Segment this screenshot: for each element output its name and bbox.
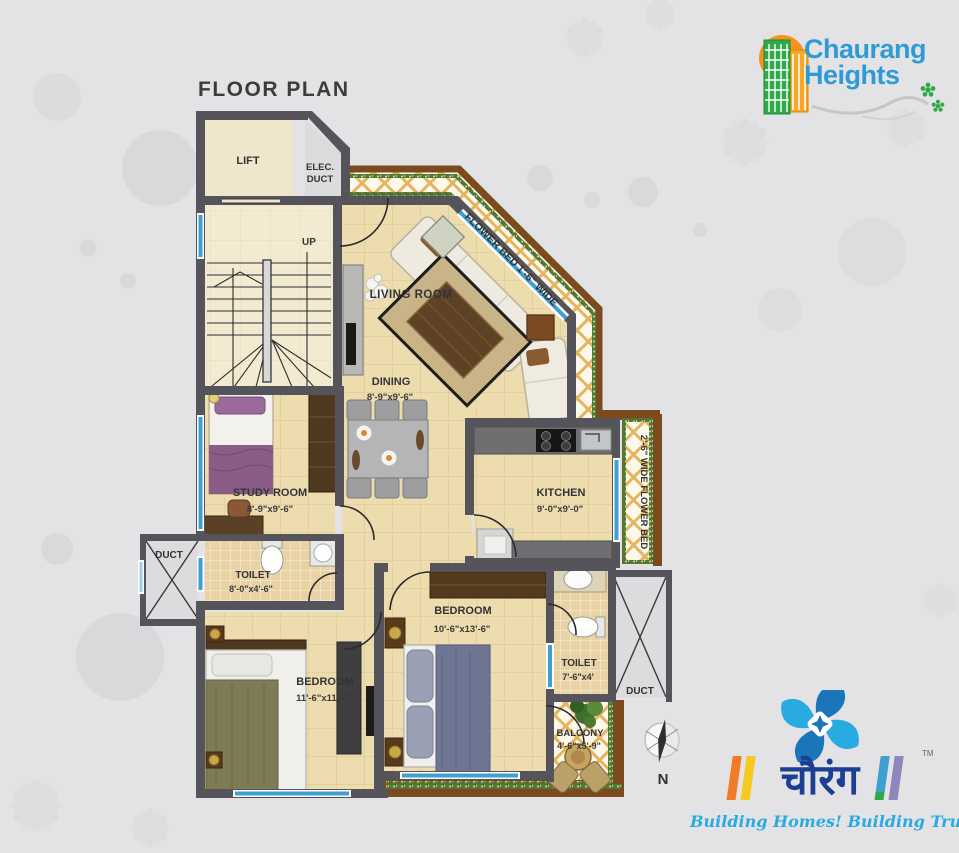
room-label-dining: DINING <box>372 376 411 388</box>
room-label-elec-duct-2: DUCT <box>307 174 334 185</box>
floor-plan-page: LIFT ELEC. DUCT UP LIVING ROOM DINING 8'… <box>0 0 959 853</box>
page-title: FLOOR PLAN <box>198 78 350 102</box>
window <box>613 458 620 542</box>
room-label-toilet-left: TOILET <box>235 570 270 581</box>
room-label-bedroom-left: BEDROOM <box>296 676 353 688</box>
dining-set <box>347 400 428 498</box>
window <box>197 213 204 259</box>
window <box>138 560 144 594</box>
brand-name-line2: Heights <box>804 60 900 90</box>
room-label-duct-left: DUCT <box>155 550 183 561</box>
room-dims-kitchen: 9'-0"x9'-0" <box>537 504 583 515</box>
window <box>400 772 520 779</box>
footer-brand-name: चौरंग <box>780 755 861 804</box>
lift-door <box>222 199 280 203</box>
compass-north-label: N <box>658 771 669 788</box>
room-dims-toilet-left: 8'-0"x4'-6" <box>229 584 273 594</box>
trademark-symbol: TM <box>922 749 934 758</box>
room-label-toilet-right: TOILET <box>561 658 596 669</box>
stair-up-label: UP <box>302 237 316 248</box>
window <box>197 556 204 592</box>
tv <box>346 323 356 365</box>
room-dims-study: 8'-9"x9'-6" <box>247 504 293 515</box>
side-table-wood <box>527 315 554 340</box>
footer-brand-logo: चौरंग TM Building Homes! Building Trust! <box>690 690 950 831</box>
window <box>233 790 351 797</box>
brand-logo: Chaurang Heights <box>742 28 952 128</box>
room-dims-balcony: 4'-6"x5'-9" <box>557 741 601 751</box>
stair-rail <box>263 260 271 382</box>
brand-tagline: Building Homes! Building Trust! <box>690 812 950 831</box>
room-label-elec-duct-1: ELEC. <box>306 162 334 173</box>
flower-bed-right-label: 2'-6" WIDE FLOWER BED <box>638 435 649 550</box>
room-label-lift: LIFT <box>236 155 259 167</box>
logo-swirl <box>812 97 928 113</box>
room-label-kitchen: KITCHEN <box>537 487 586 499</box>
brand-logo-wordmark: Chaurang Heights <box>804 36 926 88</box>
window <box>546 643 554 689</box>
compass: N <box>645 719 679 788</box>
footer-logo-graphic: चौरंग TM <box>690 690 950 810</box>
room-label-living: LIVING ROOM <box>370 289 453 301</box>
room-label-balcony: BALCONY <box>557 728 605 739</box>
room-label-duct-right: DUCT <box>626 686 654 697</box>
room-dims-bedroom-left: 11'-6"x11'-6" <box>296 693 352 704</box>
room-label-study: STUDY ROOM <box>233 487 307 499</box>
window <box>197 415 204 531</box>
room-dims-toilet-right: 7'-6"x4' <box>562 672 594 682</box>
room-dims-dining: 8'-9"x9'-6" <box>367 392 413 403</box>
room-label-bedroom-right: BEDROOM <box>434 605 491 617</box>
pinwheel-icon <box>781 690 859 763</box>
wall-tv <box>366 686 374 736</box>
room-dims-bedroom-right: 10'-6"x13'-6" <box>434 624 491 635</box>
